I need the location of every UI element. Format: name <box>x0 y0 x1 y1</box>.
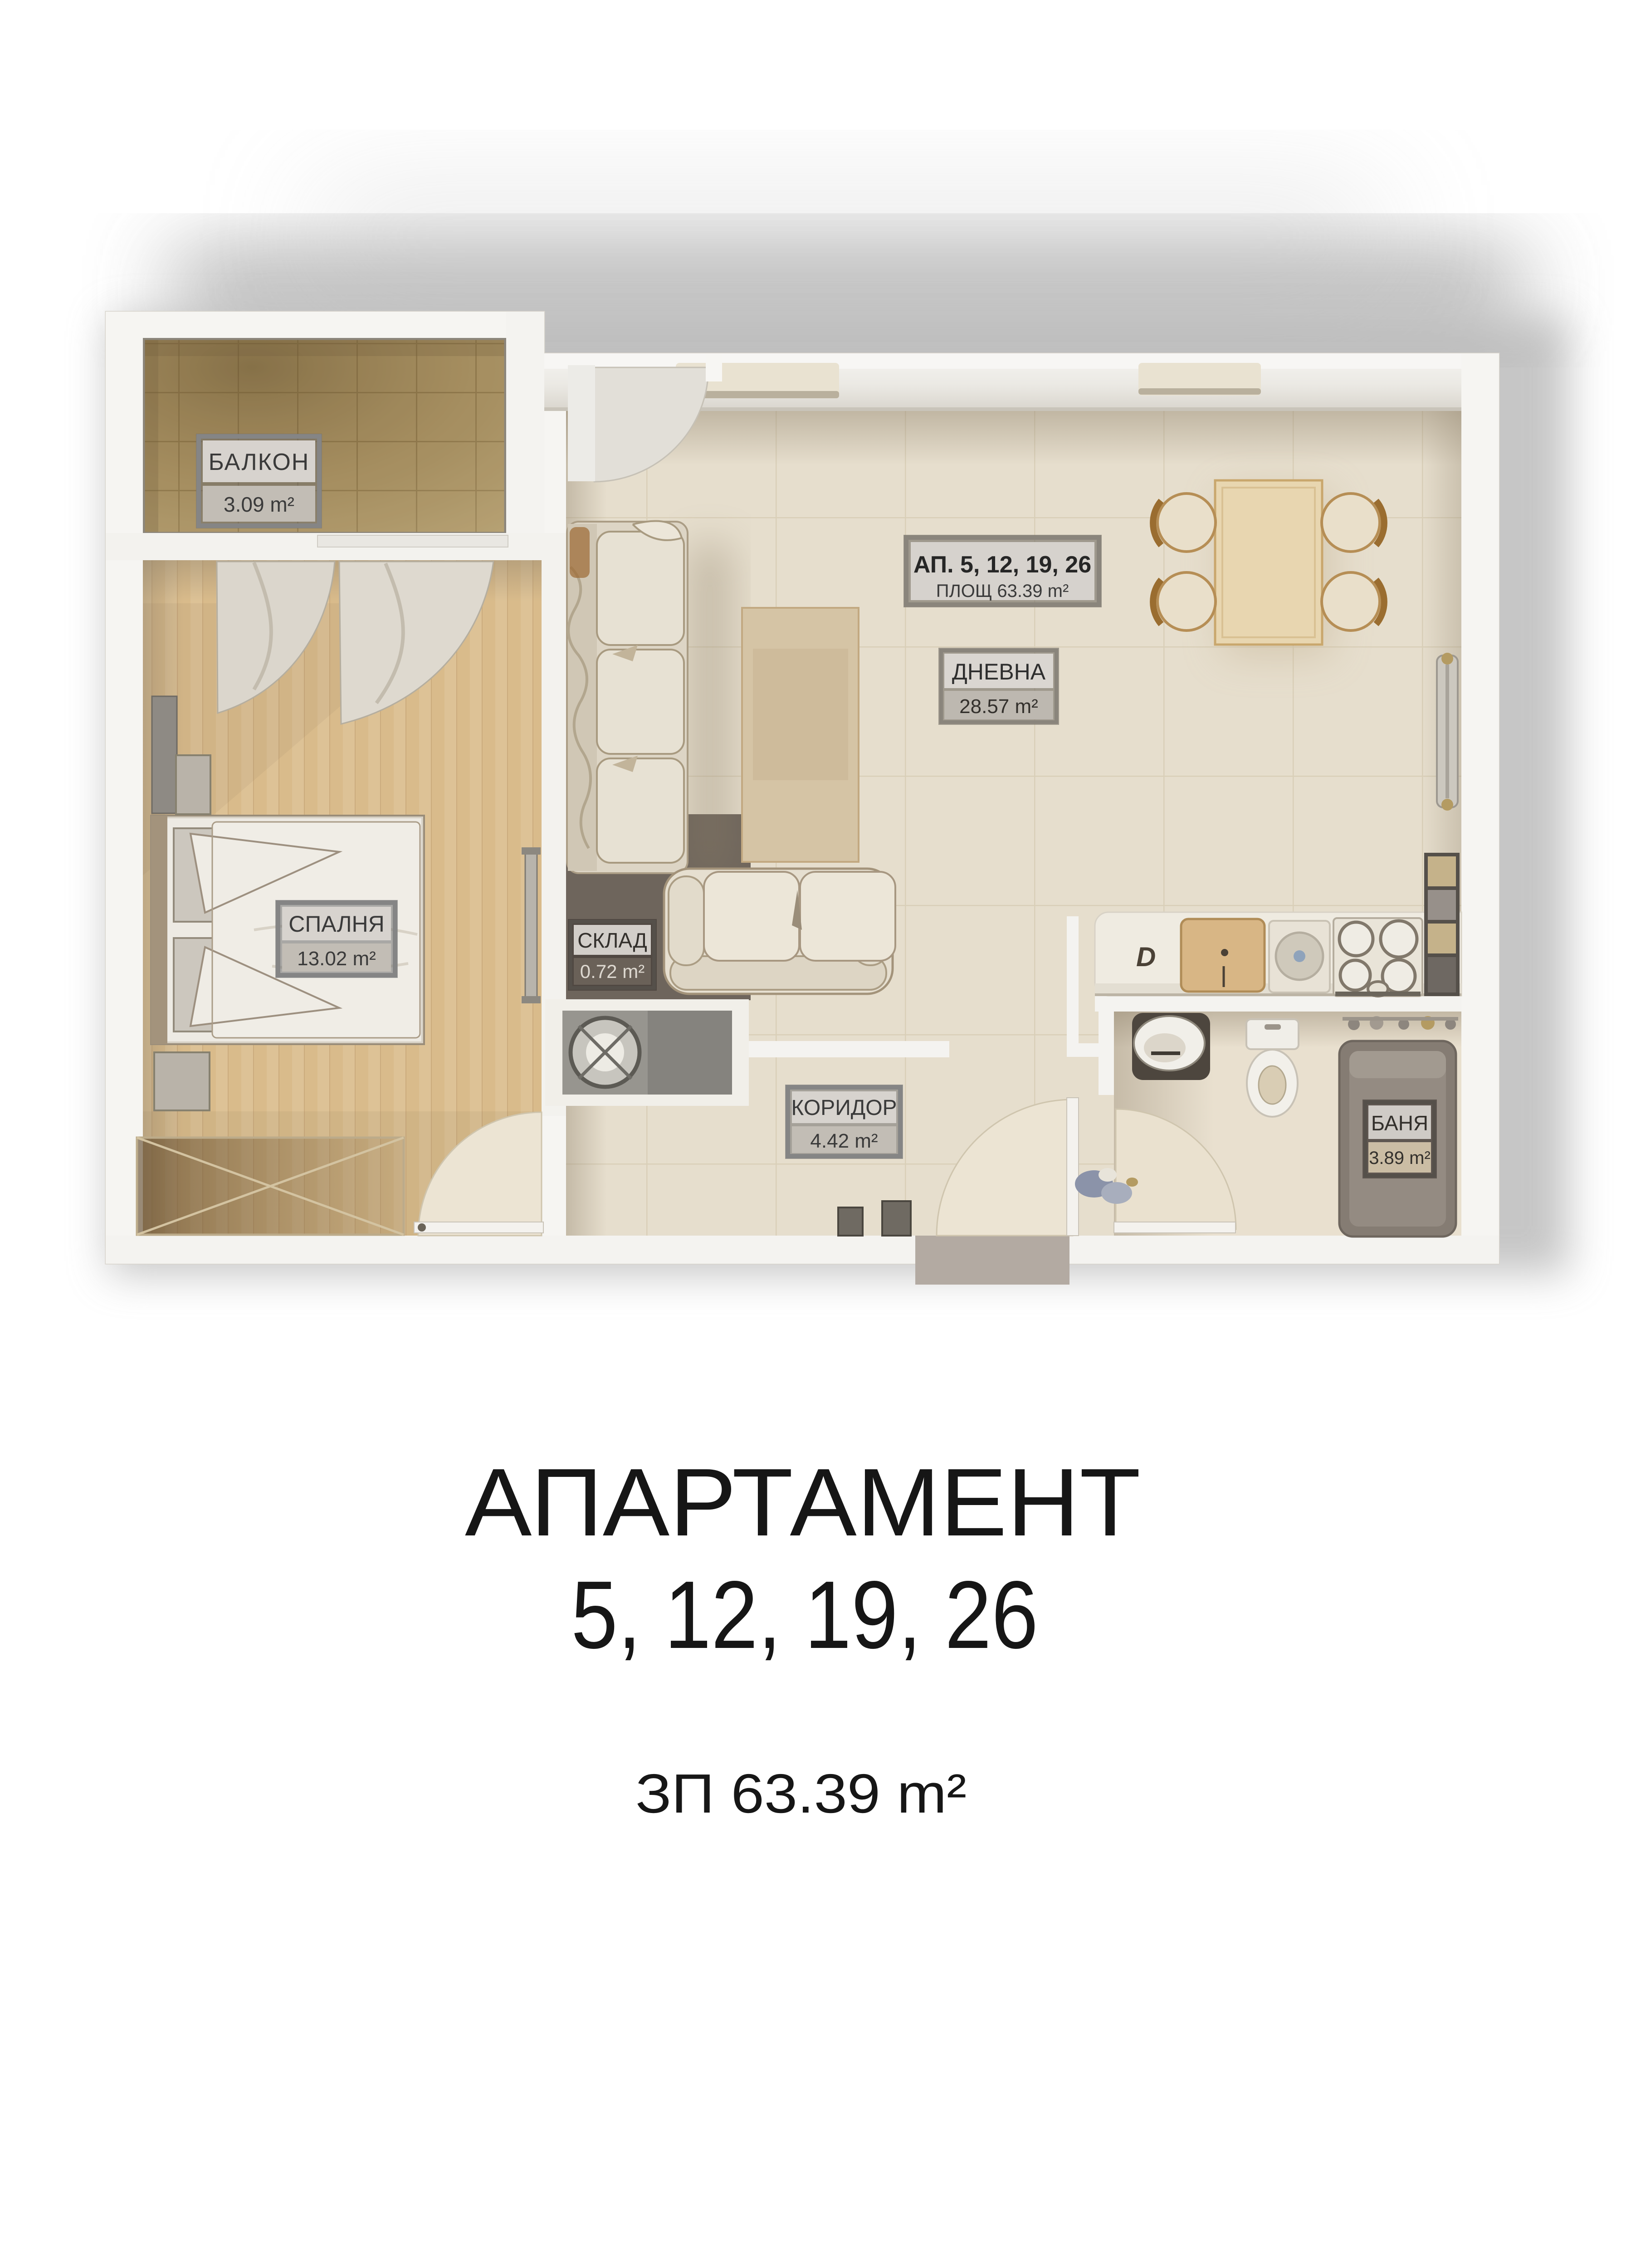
svg-text:КОРИДОР: КОРИДОР <box>791 1096 897 1120</box>
svg-text:3.89 m²: 3.89 m² <box>1369 1148 1431 1168</box>
svg-text:28.57 m²: 28.57 m² <box>959 695 1038 718</box>
svg-text:ДНЕВНА: ДНЕВНА <box>952 659 1046 684</box>
svg-text:5, 12, 19, 26: 5, 12, 19, 26 <box>571 1561 1038 1668</box>
svg-text:D: D <box>1136 942 1156 972</box>
svg-text:ЗП 63.39 m²: ЗП 63.39 m² <box>635 1763 967 1824</box>
svg-text:СКЛАД: СКЛАД <box>577 929 647 952</box>
svg-text:АПАРТАМЕНТ: АПАРТАМЕНТ <box>465 1448 1141 1556</box>
svg-text:ПЛОЩ 63.39 m²: ПЛОЩ 63.39 m² <box>936 581 1069 601</box>
svg-text:СПАЛНЯ: СПАЛНЯ <box>288 911 385 937</box>
svg-text:3.09 m²: 3.09 m² <box>224 493 294 516</box>
svg-text:БАНЯ: БАНЯ <box>1371 1111 1428 1135</box>
svg-text:АП. 5, 12, 19, 26: АП. 5, 12, 19, 26 <box>913 552 1091 578</box>
svg-text:4.42 m²: 4.42 m² <box>810 1130 878 1152</box>
svg-text:0.72 m²: 0.72 m² <box>580 961 645 982</box>
svg-text:БАЛКОН: БАЛКОН <box>209 449 310 475</box>
svg-text:13.02 m²: 13.02 m² <box>297 948 376 970</box>
